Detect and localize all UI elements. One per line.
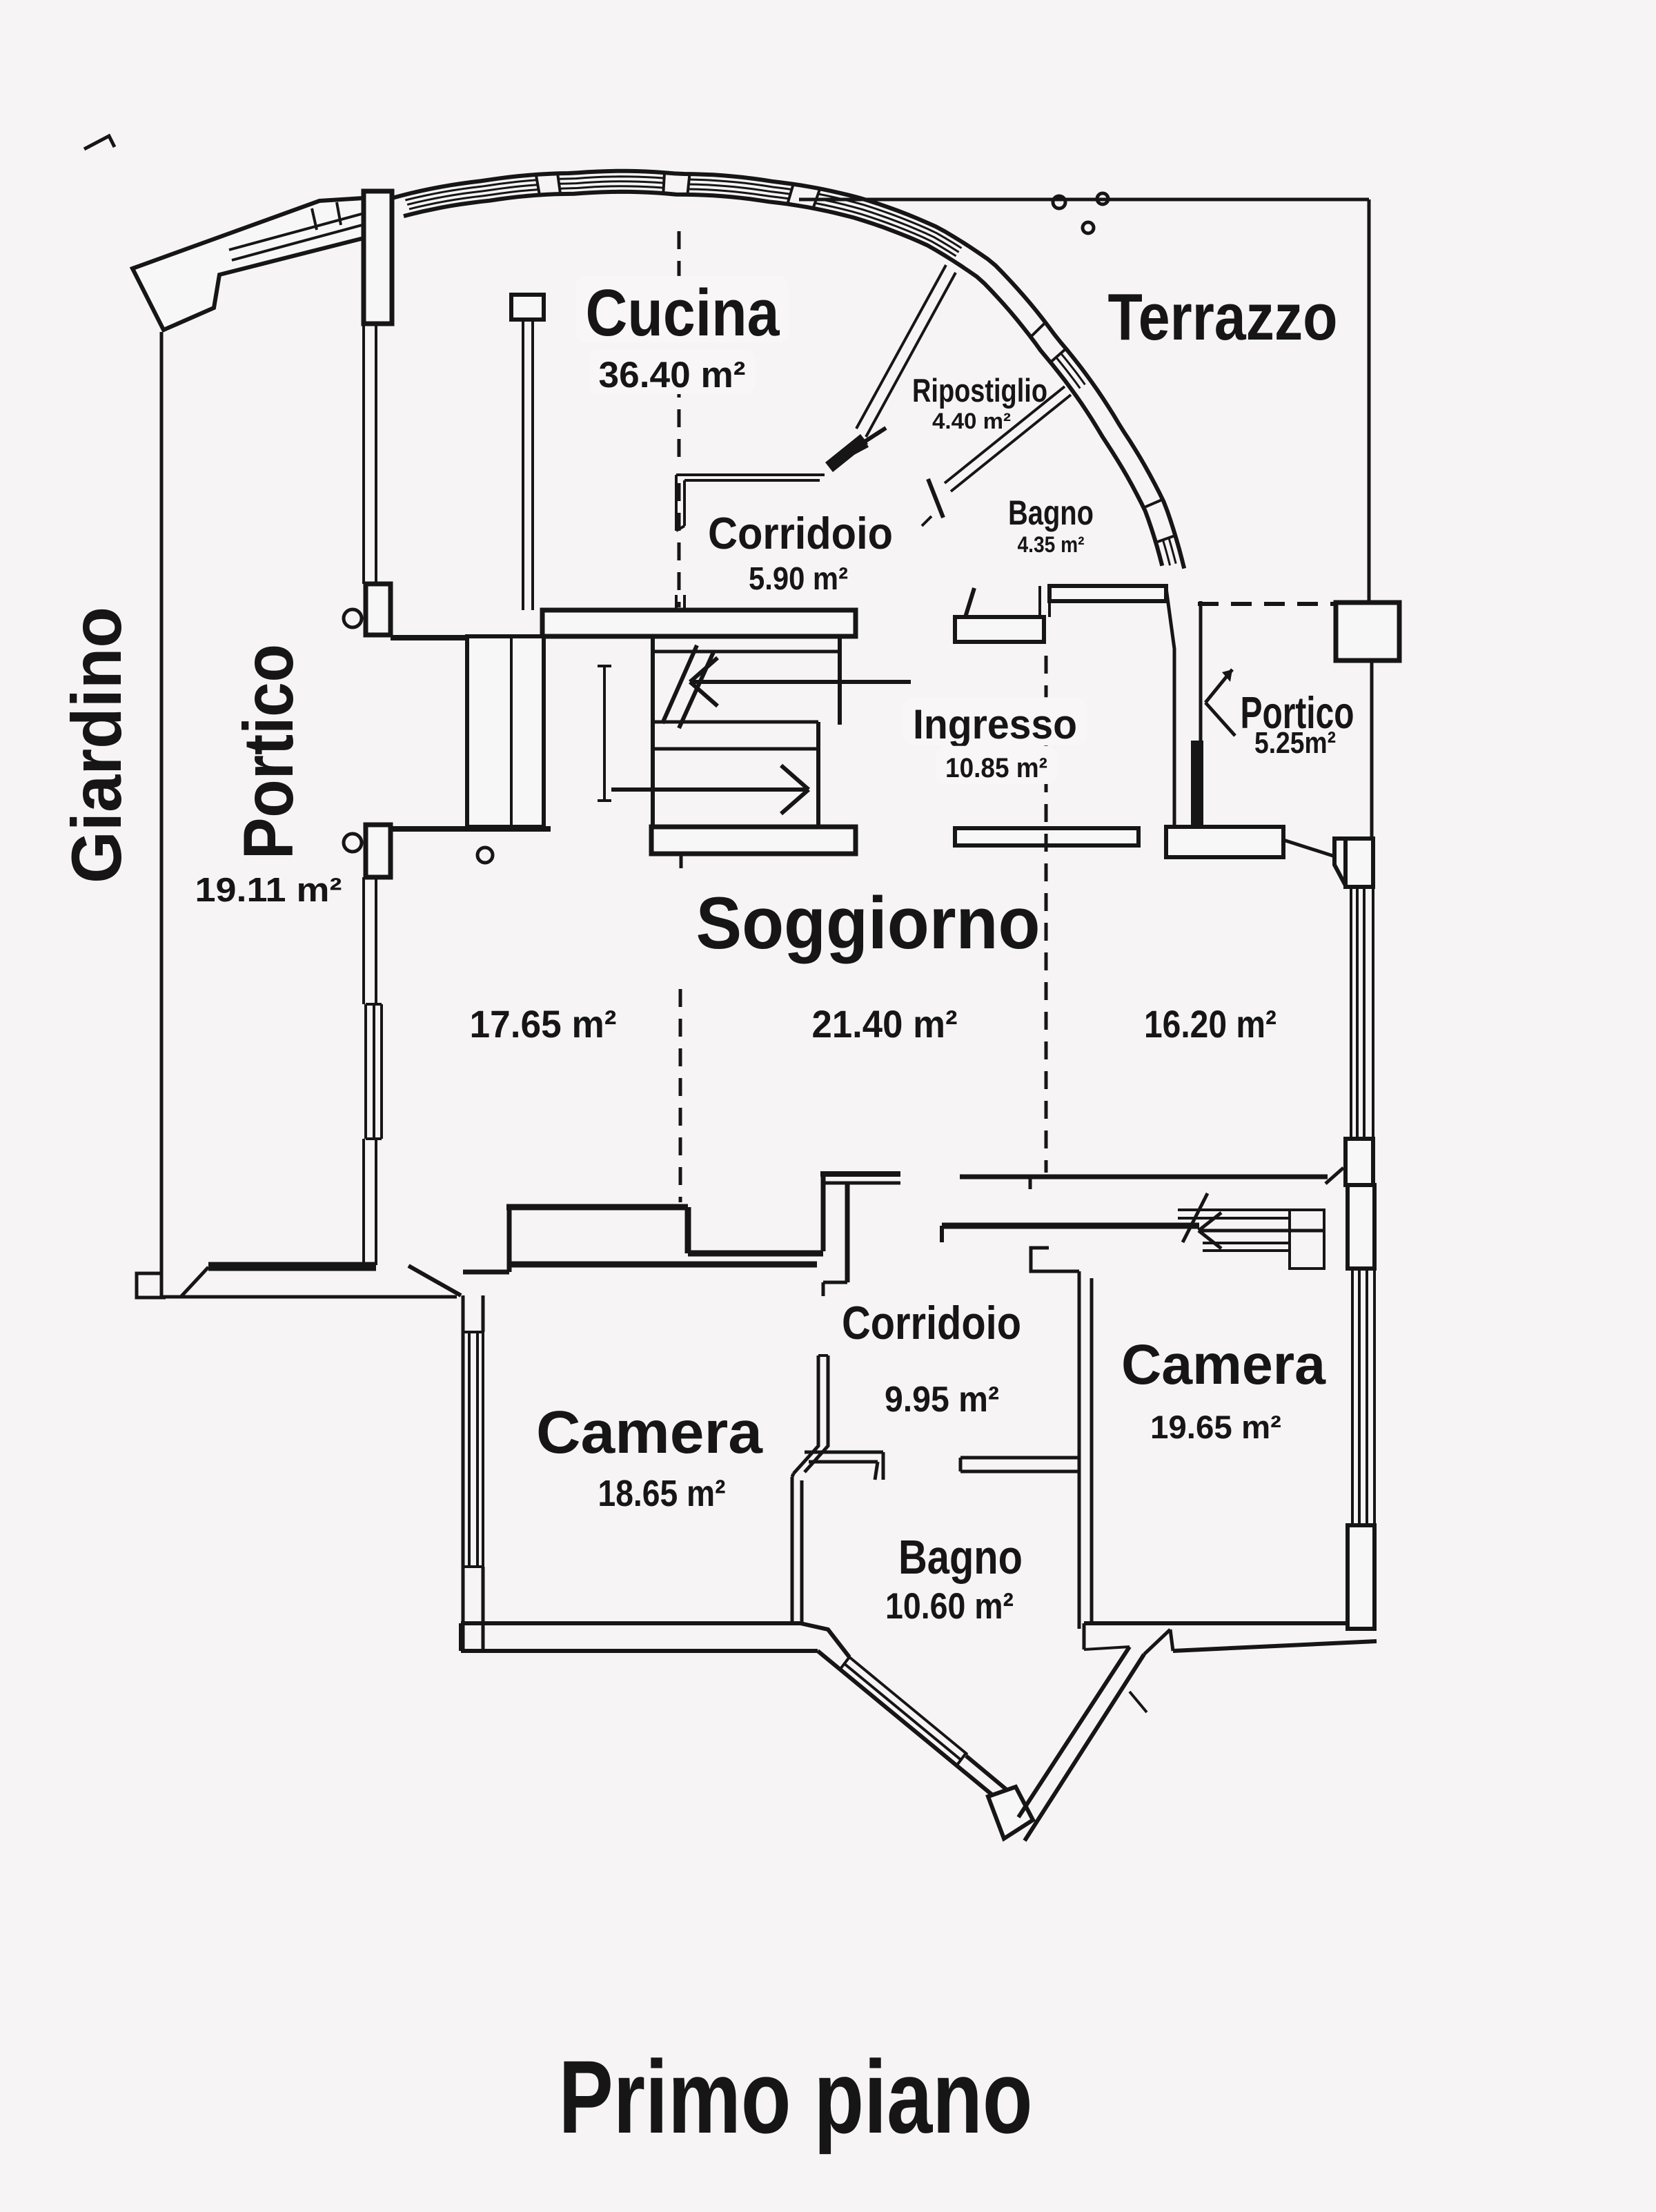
svg-text:Camera: Camera (536, 1399, 763, 1466)
svg-text:16.20 m²: 16.20 m² (1144, 1002, 1276, 1046)
svg-text:9.95 m²: 9.95 m² (885, 1380, 999, 1420)
svg-text:Portico: Portico (229, 644, 308, 859)
svg-text:Bagno: Bagno (898, 1530, 1023, 1584)
svg-text:Corridoio: Corridoio (708, 508, 893, 558)
svg-text:5.25m²: 5.25m² (1254, 726, 1336, 760)
svg-text:Terrazzo: Terrazzo (1108, 280, 1338, 354)
svg-text:Ingresso: Ingresso (913, 701, 1077, 747)
svg-text:Bagno: Bagno (1008, 493, 1094, 532)
svg-text:Ripostiglio: Ripostiglio (912, 372, 1047, 409)
svg-text:Soggiorno: Soggiorno (696, 881, 1041, 964)
svg-text:19.65 m²: 19.65 m² (1150, 1409, 1281, 1445)
svg-text:Primo piano: Primo piano (559, 2039, 1033, 2155)
svg-text:5.90 m²: 5.90 m² (749, 560, 848, 596)
svg-text:18.65 m²: 18.65 m² (598, 1473, 726, 1514)
svg-text:Camera: Camera (1121, 1333, 1326, 1396)
svg-text:Cucina: Cucina (586, 276, 780, 350)
svg-text:36.40 m²: 36.40 m² (599, 355, 746, 395)
svg-text:21.40 m²: 21.40 m² (812, 1002, 958, 1046)
svg-text:17.65 m²: 17.65 m² (470, 1002, 617, 1046)
svg-text:10.85 m²: 10.85 m² (945, 753, 1047, 783)
svg-text:4.40 m²: 4.40 m² (932, 409, 1011, 433)
svg-text:10.60 m²: 10.60 m² (885, 1586, 1014, 1627)
svg-text:19.11 m²: 19.11 m² (195, 872, 342, 909)
svg-text:4.35 m²: 4.35 m² (1018, 532, 1085, 557)
svg-text:Giardino: Giardino (57, 607, 136, 883)
svg-text:Corridoio: Corridoio (842, 1297, 1021, 1349)
